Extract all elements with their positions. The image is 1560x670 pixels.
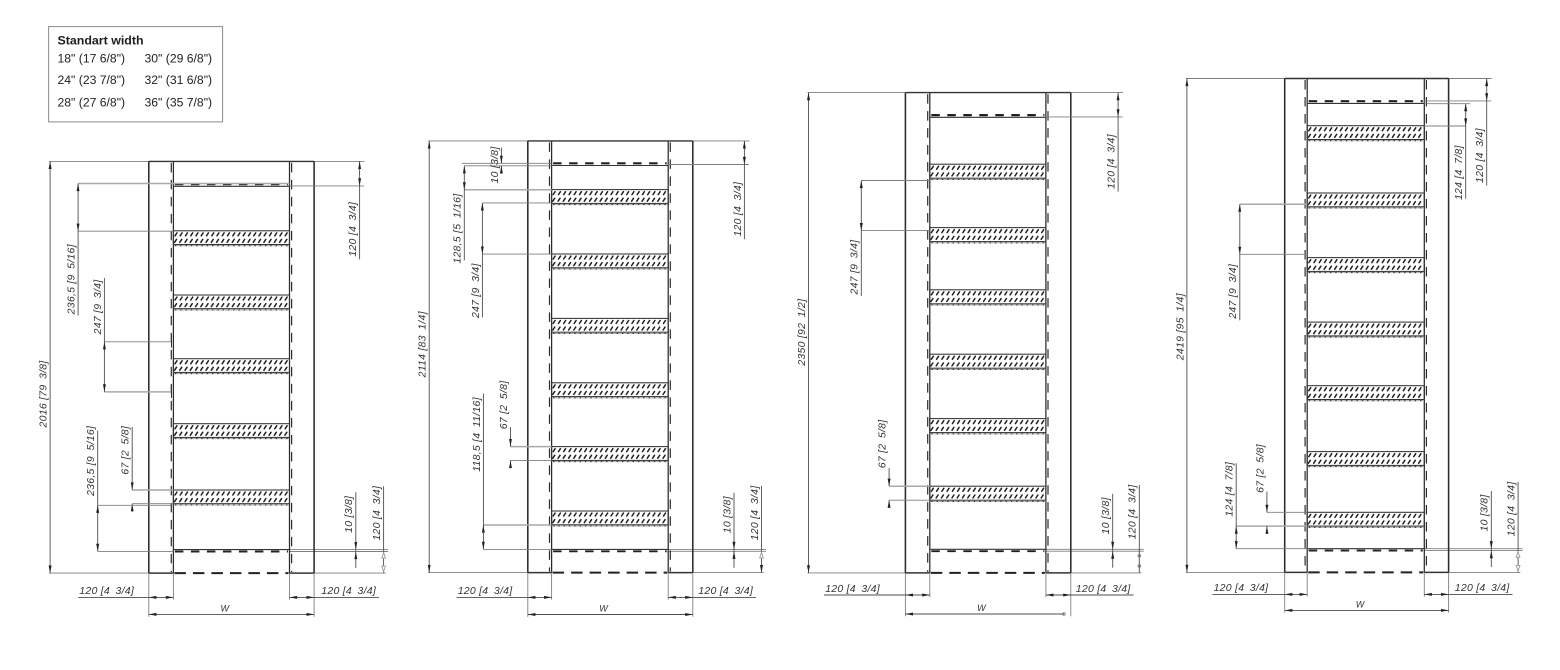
svg-text:32" (31 6/8"): 32" (31 6/8"): [145, 73, 213, 87]
svg-text:247 [9 3/4]: 247 [9 3/4]: [92, 279, 104, 336]
svg-text:236,5 [9 5/16]: 236,5 [9 5/16]: [85, 425, 97, 497]
svg-text:W: W: [599, 604, 609, 614]
svg-text:2419 [95 1/4]: 2419 [95 1/4]: [1174, 292, 1186, 361]
svg-text:10 [3/8]: 10 [3/8]: [721, 495, 733, 533]
svg-text:30" (29 6/8"): 30" (29 6/8"): [145, 52, 213, 66]
svg-text:236,5 [9 5/16]: 236,5 [9 5/16]: [65, 243, 77, 315]
svg-text:10 [3/8]: 10 [3/8]: [343, 495, 355, 533]
svg-text:10 [3/8]: 10 [3/8]: [489, 146, 501, 184]
svg-text:120 [4 3/4]: 120 [4 3/4]: [1106, 133, 1118, 189]
svg-text:2114 [83 1/4]: 2114 [83 1/4]: [417, 310, 429, 378]
svg-text:67 [2 5/8]: 67 [2 5/8]: [120, 425, 132, 474]
svg-text:247 [9 3/4]: 247 [9 3/4]: [849, 239, 861, 296]
svg-text:120 [4 3/4]: 120 [4 3/4]: [79, 585, 135, 597]
svg-text:124 [4 7/8]: 124 [4 7/8]: [1453, 145, 1465, 201]
svg-text:120 [4 3/4]: 120 [4 3/4]: [698, 585, 754, 597]
svg-text:120 [4 3/4]: 120 [4 3/4]: [371, 485, 383, 541]
svg-text:67 [2 5/8]: 67 [2 5/8]: [498, 380, 510, 429]
svg-text:120 [4 3/4]: 120 [4 3/4]: [1214, 582, 1270, 594]
svg-text:120 [4 3/4]: 120 [4 3/4]: [825, 583, 881, 595]
svg-text:2016 [79 3/8]: 2016 [79 3/8]: [38, 360, 50, 429]
svg-text:118,5 [4 11/16]: 118,5 [4 11/16]: [471, 396, 483, 471]
svg-text:28" (27 6/8"): 28" (27 6/8"): [58, 95, 126, 109]
svg-text:Standart width: Standart width: [58, 34, 144, 48]
svg-text:128,5 [5 1/16]: 128,5 [5 1/16]: [452, 193, 464, 264]
svg-text:120 [4 3/4]: 120 [4 3/4]: [1455, 582, 1511, 594]
svg-text:120 [4 3/4]: 120 [4 3/4]: [321, 585, 377, 597]
svg-text:124 [4 7/8]: 124 [4 7/8]: [1224, 461, 1236, 517]
svg-text:36" (35 7/8"): 36" (35 7/8"): [145, 95, 213, 109]
svg-text:120 [4 3/4]: 120 [4 3/4]: [749, 485, 761, 541]
svg-text:18" (17 6/8"): 18" (17 6/8"): [58, 52, 126, 66]
svg-text:247 [9 3/4]: 247 [9 3/4]: [470, 263, 482, 320]
svg-text:120 [4 3/4]: 120 [4 3/4]: [347, 201, 359, 257]
svg-text:67 [2 5/8]: 67 [2 5/8]: [1254, 443, 1266, 492]
svg-text:120 [4 3/4]: 120 [4 3/4]: [1474, 127, 1486, 183]
svg-text:120 [4 3/4]: 120 [4 3/4]: [1076, 583, 1132, 595]
svg-text:247 [9 3/4]: 247 [9 3/4]: [1227, 263, 1239, 320]
svg-text:120 [4 3/4]: 120 [4 3/4]: [1506, 481, 1518, 537]
svg-text:W: W: [221, 604, 231, 614]
svg-text:67 [2 5/8]: 67 [2 5/8]: [877, 419, 889, 468]
svg-text:10 [3/8]: 10 [3/8]: [1479, 494, 1491, 532]
svg-text:W: W: [977, 603, 987, 613]
svg-text:24" (23 7/8"): 24" (23 7/8"): [58, 73, 126, 87]
svg-text:2350 [92 1/2]: 2350 [92 1/2]: [796, 298, 808, 367]
svg-text:120 [4 3/4]: 120 [4 3/4]: [1127, 484, 1139, 540]
svg-text:10 [3/8]: 10 [3/8]: [1100, 496, 1112, 534]
svg-text:120 [4 3/4]: 120 [4 3/4]: [732, 181, 744, 237]
svg-text:120 [4 3/4]: 120 [4 3/4]: [458, 585, 514, 597]
svg-text:W: W: [1356, 600, 1366, 610]
